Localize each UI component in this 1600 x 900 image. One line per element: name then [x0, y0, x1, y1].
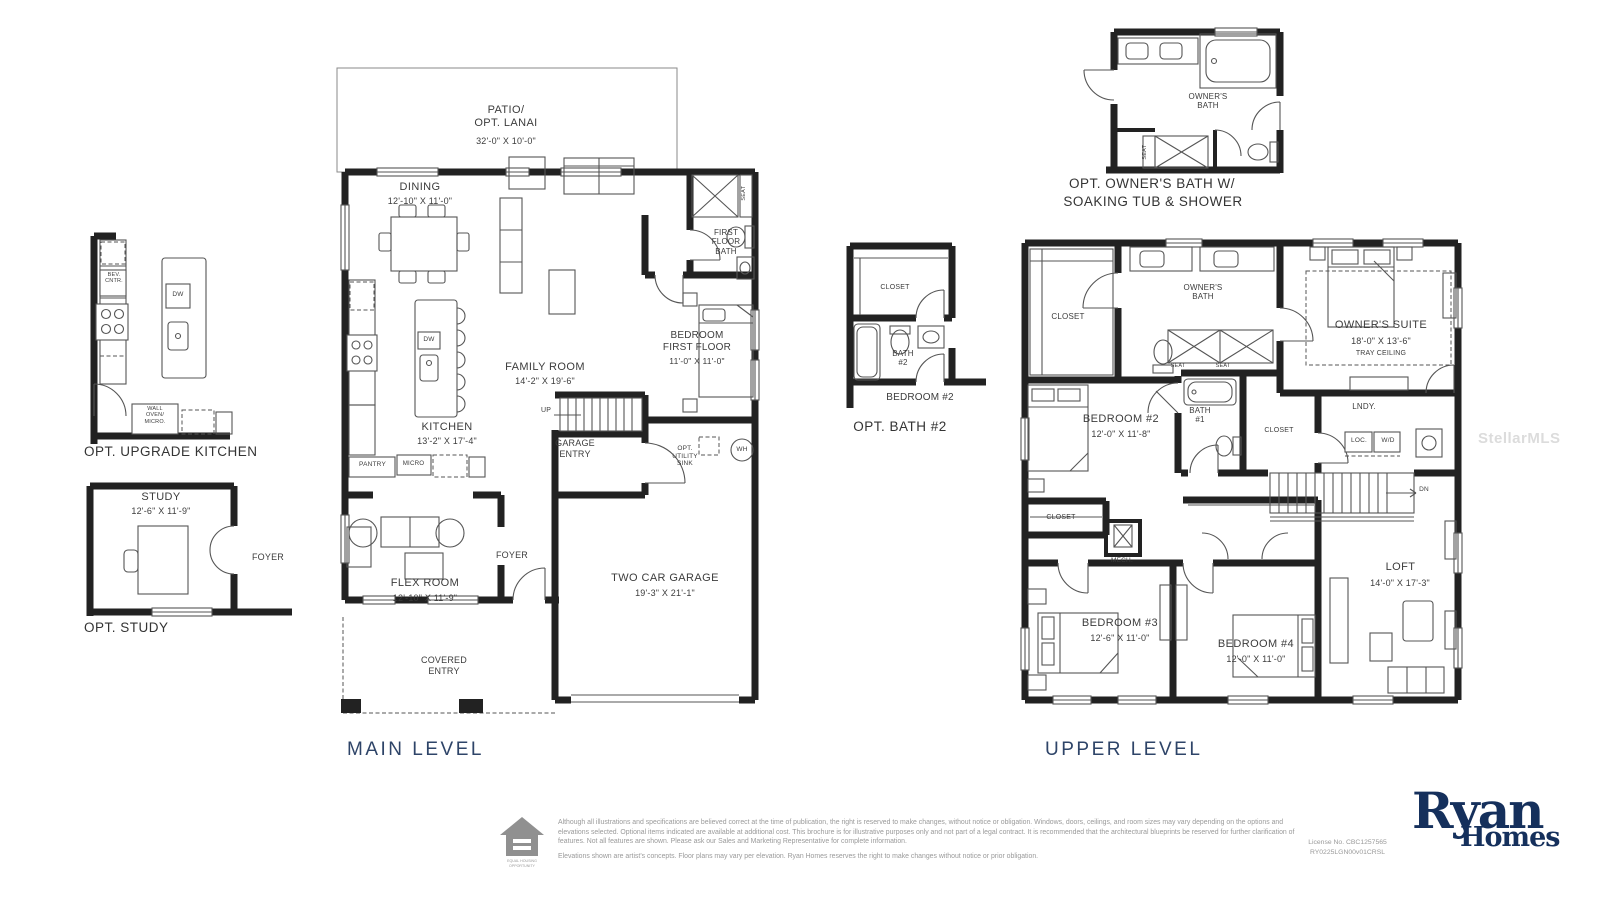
owners-suite-dims: 18'-0" X 13'-6": [1320, 336, 1442, 347]
bev-cntr-label: BEV. CNTR.: [100, 272, 128, 285]
wd-label: W/D: [1374, 437, 1402, 445]
ryan-homes-logo: Ryan Homes: [1412, 786, 1562, 876]
bedroom2-dims: 12'-0" X 11'-8": [1066, 429, 1176, 440]
bedroom3-label: BEDROOM #3: [1066, 617, 1174, 630]
bath2-closet-label: CLOSET: [870, 284, 920, 292]
patio-dims: 32'-0" X 10'-0": [440, 136, 572, 147]
equal-housing-label: EQUAL HOUSING OPPORTUNITY: [492, 859, 552, 868]
bath2-label: BATH #2: [885, 349, 921, 368]
brand-homes: Homes: [1460, 824, 1562, 851]
upper-level-caption: UPPER LEVEL: [1045, 739, 1225, 761]
owners-closet-label: CLOSET: [1250, 427, 1308, 435]
garage-entry-label: GARAGE ENTRY: [541, 438, 609, 459]
bedroom4-dims: 12'-0" X 11'-0": [1196, 654, 1316, 665]
flex-room-label: FLEX ROOM: [380, 577, 470, 590]
garage-dims: 19'-3" X 21'-1": [595, 588, 735, 599]
tray-ceiling-label: TRAY CEILING: [1320, 350, 1442, 358]
owners-bath-seat-label: SEAT: [1142, 134, 1148, 170]
micro-label: MICRO: [397, 460, 430, 467]
upgrade-kitchen-caption: OPT. UPGRADE KITCHEN: [84, 444, 284, 460]
kitchen-dims: 13'-2" X 17'-4": [402, 436, 492, 447]
owners-bath-opt-label: OWNER'S BATH: [1168, 92, 1248, 111]
disclaimer-text: Although all illustrations and specifica…: [558, 818, 1300, 866]
main-level-caption: MAIN LEVEL: [347, 739, 507, 761]
license-number: License No. CBC1257565: [1285, 838, 1410, 848]
study-dims: 12'-6" X 11'-9": [118, 506, 204, 517]
garage-label: TWO CAR GARAGE: [595, 572, 735, 585]
dining-dims: 12'-10" X 11'-0": [375, 196, 465, 207]
license-text: License No. CBC1257565 RY0225LGN00v01CRS…: [1285, 838, 1410, 858]
main-level-drawing: [333, 65, 763, 725]
ff-bath-seat-label: SEAT: [741, 175, 747, 211]
foyer-label: FOYER: [487, 550, 537, 561]
pantry-label: PANTRY: [350, 461, 395, 469]
owners-bath-caption-1: OPT. OWNER'S BATH W/: [1052, 176, 1252, 192]
hall-closet-label: CLOSET: [1032, 514, 1090, 522]
up-label: UP: [536, 407, 556, 415]
loft-label: LOFT: [1358, 561, 1443, 574]
disclaimer-paragraph-1: Although all illustrations and specifica…: [558, 818, 1300, 847]
mech-label: MECH.: [1100, 557, 1144, 565]
bedroom3-dims: 12'-6" X 11'-0": [1066, 633, 1174, 644]
patio-label: PATIO/ OPT. LANAI: [440, 104, 572, 130]
loc-label: LOC.: [1345, 437, 1373, 445]
bedroom2-label: BEDROOM #2: [1066, 413, 1176, 426]
wall-oven-label: WALL OVEN/ MICRO.: [133, 406, 177, 425]
bedroom4-label: BEDROOM #4: [1196, 638, 1316, 651]
equal-housing-icon: [498, 816, 546, 858]
upper-owners-bath-label: OWNER'S BATH: [1173, 283, 1233, 302]
study-foyer-label: FOYER: [243, 552, 293, 563]
plan-code: RY0225LGN00v01CRSL: [1285, 848, 1410, 858]
bath1-label: BATH #1: [1178, 406, 1222, 425]
shower-seat1-label: SEAT: [1163, 363, 1193, 369]
loft-dims: 14'-0" X 17'-3": [1352, 578, 1448, 589]
upgrade-kitchen-drawing: [80, 226, 345, 466]
bedroom-ff-dims: 11'-0" X 11'-0": [657, 356, 737, 366]
bedroom-ff-label: BEDROOM FIRST FLOOR: [657, 330, 737, 354]
disclaimer-paragraph-2: Elevations shown are artist's concepts. …: [558, 852, 1300, 862]
dn-label: DN: [1412, 486, 1436, 494]
bath2-opt-drawing: [826, 230, 991, 445]
owners-bath-caption-2: SOAKING TUB & SHOWER: [1048, 194, 1258, 210]
family-room-label: FAMILY ROOM: [500, 361, 590, 374]
island-dw-label: DW: [166, 291, 190, 299]
kitchen-label: KITCHEN: [402, 421, 492, 434]
study-room-label: STUDY: [125, 491, 197, 504]
study-caption: OPT. STUDY: [84, 620, 204, 636]
floorplan-brochure: BEV. CNTR. DW WALL OVEN/ MICRO. OPT. UPG…: [0, 0, 1600, 900]
dining-label: DINING: [375, 181, 465, 194]
covered-entry-label: COVERED ENTRY: [409, 655, 479, 676]
shower-seat2-label: SEAT: [1208, 363, 1238, 369]
stellar-mls-watermark: StellarMLS: [1478, 430, 1561, 447]
first-floor-bath-label: FIRST FLOOR BATH: [700, 228, 752, 256]
wh-label: WH: [731, 446, 753, 454]
flex-room-dims: 12'-10" X 11'-9": [380, 593, 470, 604]
opt-utility-sink-label: OPT. UTILITY SINK: [660, 445, 710, 468]
bath2-caption: OPT. BATH #2: [845, 419, 955, 435]
walkin-closet-label: CLOSET: [1038, 312, 1098, 321]
main-dw-label: DW: [418, 336, 440, 344]
bath2-bedroom-label: BEDROOM #2: [870, 392, 970, 404]
lndy-label: LNDY.: [1338, 402, 1390, 411]
owners-suite-label: OWNER'S SUITE: [1320, 319, 1442, 332]
family-room-dims: 14'-2" X 19'-6": [500, 376, 590, 387]
